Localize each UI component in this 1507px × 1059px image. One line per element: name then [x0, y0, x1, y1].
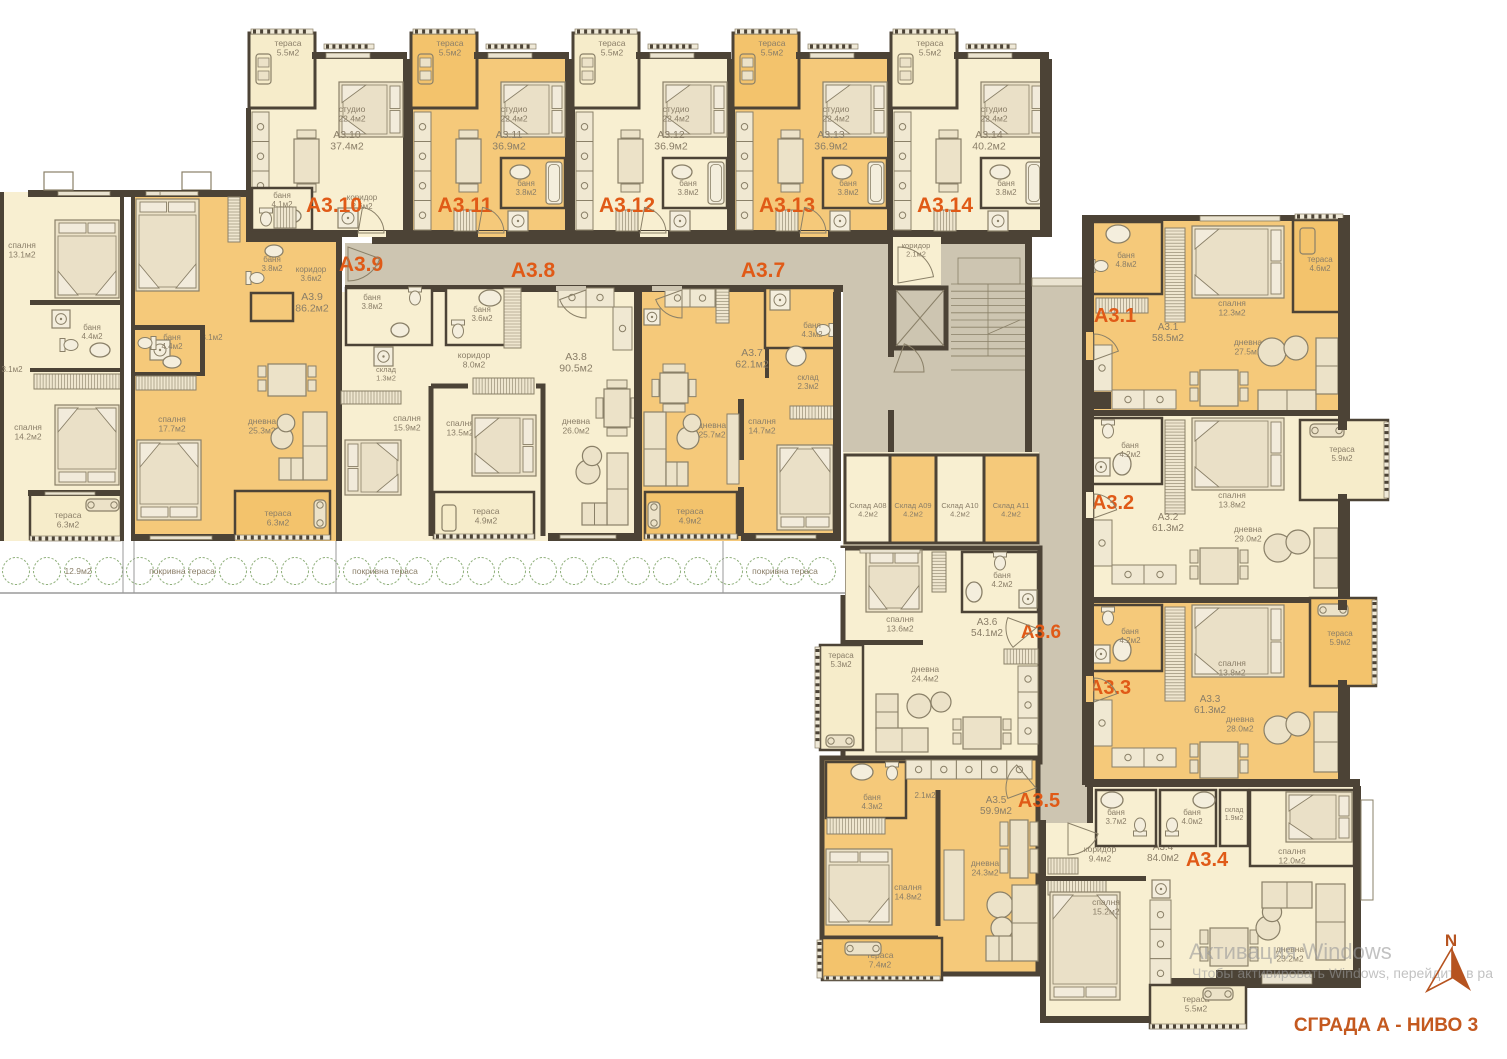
svg-text:3.6м2: 3.6м2	[300, 274, 322, 283]
svg-text:15.2м2: 15.2м2	[1092, 907, 1119, 917]
svg-text:5.5м2: 5.5м2	[439, 48, 462, 58]
svg-text:баня: баня	[1117, 251, 1135, 260]
svg-text:22.4м2: 22.4м2	[822, 114, 849, 124]
svg-text:5.5м2: 5.5м2	[601, 48, 624, 58]
svg-text:3.8м2: 3.8м2	[515, 188, 537, 197]
svg-text:спалня: спалня	[894, 882, 922, 892]
svg-text:дневна: дневна	[971, 858, 1000, 868]
svg-text:спалня: спалня	[158, 414, 186, 424]
svg-text:A3.8: A3.8	[565, 351, 587, 363]
svg-text:3.8м2: 3.8м2	[677, 188, 699, 197]
svg-text:3.8м2: 3.8м2	[261, 264, 283, 273]
svg-text:A3.12: A3.12	[657, 129, 685, 141]
svg-text:26.0м2: 26.0м2	[562, 426, 589, 436]
svg-text:Чтобы активировать Windows, пе: Чтобы активировать Windows, перейдите в …	[1192, 965, 1493, 981]
svg-text:24.3м2: 24.3м2	[971, 868, 998, 878]
svg-text:5.5м2: 5.5м2	[277, 48, 300, 58]
svg-text:покривна тераса: покривна тераса	[352, 566, 418, 576]
svg-text:покривна тераса: покривна тераса	[752, 566, 818, 576]
svg-text:баня: баня	[679, 179, 697, 188]
svg-text:4.2м2: 4.2м2	[903, 510, 923, 519]
svg-text:8.0м2: 8.0м2	[463, 360, 486, 370]
svg-text:дневна: дневна	[698, 420, 727, 430]
svg-text:спалня: спалня	[14, 422, 42, 432]
svg-text:4.8м2: 4.8м2	[1115, 260, 1137, 269]
svg-text:A3.14: A3.14	[975, 129, 1003, 141]
svg-text:A3.5: A3.5	[986, 795, 1007, 806]
svg-text:спалня: спалня	[1092, 897, 1120, 907]
svg-text:3.7м2: 3.7м2	[1105, 817, 1127, 826]
svg-text:5.5м2: 5.5м2	[761, 48, 784, 58]
svg-text:3.8м2: 3.8м2	[361, 302, 383, 311]
svg-text:22.4м2: 22.4м2	[500, 114, 527, 124]
svg-text:спалня: спалня	[748, 416, 776, 426]
svg-text:5.3м2: 5.3м2	[830, 660, 852, 669]
svg-text:тераса: тераса	[1329, 445, 1355, 454]
svg-text:A3.11: A3.11	[438, 194, 493, 217]
svg-text:4.3м2: 4.3м2	[861, 802, 883, 811]
svg-text:9.4м2: 9.4м2	[1089, 854, 1112, 864]
svg-text:61.3м2: 61.3м2	[1194, 705, 1226, 716]
svg-text:2.1м2: 2.1м2	[914, 791, 936, 800]
svg-text:тераса: тераса	[917, 38, 944, 48]
svg-text:1.3м2: 1.3м2	[376, 374, 396, 383]
svg-text:склад: склад	[797, 373, 819, 382]
svg-text:A3.9: A3.9	[301, 291, 323, 303]
svg-text:тераса: тераса	[265, 508, 292, 518]
svg-text:14.2м2: 14.2м2	[14, 432, 41, 442]
svg-text:спалня: спалня	[1218, 490, 1246, 500]
svg-text:A3.2: A3.2	[1158, 512, 1179, 523]
svg-text:13.5м2: 13.5м2	[446, 428, 473, 438]
svg-text:58.5м2: 58.5м2	[1152, 333, 1184, 344]
svg-text:28.0м2: 28.0м2	[1226, 724, 1253, 734]
svg-text:склад: склад	[1225, 807, 1244, 814]
svg-text:2.3м2: 2.3м2	[797, 382, 819, 391]
svg-text:7.4м2: 7.4м2	[869, 960, 892, 970]
svg-text:24.4м2: 24.4м2	[911, 674, 938, 684]
svg-text:баня: баня	[363, 293, 381, 302]
svg-text:A3.8: A3.8	[511, 259, 556, 282]
svg-text:спалня: спалня	[446, 418, 474, 428]
svg-text:3.8м2: 3.8м2	[995, 188, 1017, 197]
svg-text:36.9м2: 36.9м2	[654, 141, 688, 153]
svg-text:спалня: спалня	[8, 240, 36, 250]
svg-text:5.9м2: 5.9м2	[1329, 638, 1351, 647]
svg-text:баня: баня	[993, 571, 1011, 580]
svg-text:тераса: тераса	[275, 38, 302, 48]
svg-text:61.3м2: 61.3м2	[1152, 523, 1184, 534]
svg-text:A3.7: A3.7	[741, 347, 763, 359]
svg-text:баня: баня	[1107, 808, 1125, 817]
svg-text:4.2м2: 4.2м2	[1119, 636, 1141, 645]
svg-text:15.9м2: 15.9м2	[393, 423, 420, 433]
svg-text:покривна тераса: покривна тераса	[149, 566, 215, 576]
svg-text:A3.1: A3.1	[1094, 305, 1136, 327]
svg-text:4.3м2: 4.3м2	[801, 330, 823, 339]
svg-text:A3.4: A3.4	[1186, 849, 1229, 871]
svg-text:12.3м2: 12.3м2	[1218, 308, 1245, 318]
svg-text:62.1м2: 62.1м2	[735, 359, 769, 371]
svg-text:дневна: дневна	[562, 416, 591, 426]
svg-text:баня: баня	[803, 321, 821, 330]
svg-text:13.6м2: 13.6м2	[886, 624, 913, 634]
svg-text:баня: баня	[1121, 627, 1139, 636]
svg-text:5.5м2: 5.5м2	[1185, 1004, 1208, 1014]
svg-text:Активация Windows: Активация Windows	[1189, 939, 1392, 964]
svg-text:баня: баня	[473, 305, 491, 314]
svg-text:дневна: дневна	[1226, 714, 1255, 724]
svg-text:баня: баня	[273, 191, 291, 200]
svg-text:13.1м2: 13.1м2	[8, 250, 35, 260]
svg-text:баня: баня	[263, 255, 281, 264]
svg-text:36.9м2: 36.9м2	[814, 141, 848, 153]
svg-text:4.2м2: 4.2м2	[858, 510, 878, 519]
svg-text:59.9м2: 59.9м2	[980, 806, 1012, 817]
svg-text:тераса: тераса	[759, 38, 786, 48]
svg-text:коридор: коридор	[458, 350, 491, 360]
svg-text:СГРАДА А - НИВО 3: СГРАДА А - НИВО 3	[1294, 1015, 1478, 1036]
svg-text:12.9м2: 12.9м2	[64, 566, 91, 576]
svg-text:баня: баня	[83, 323, 101, 332]
svg-text:14.8м2: 14.8м2	[894, 892, 921, 902]
svg-text:13.8м2: 13.8м2	[1218, 500, 1245, 510]
svg-text:A3.6: A3.6	[977, 617, 998, 628]
svg-text:4.9м2: 4.9м2	[679, 516, 702, 526]
svg-text:студио: студио	[501, 104, 528, 114]
svg-text:3.1м2: 3.1м2	[1, 365, 23, 374]
svg-text:спалня: спалня	[1278, 846, 1306, 856]
svg-text:3.8м2: 3.8м2	[837, 188, 859, 197]
svg-text:A3.3: A3.3	[1200, 694, 1221, 705]
svg-text:спалня: спалня	[886, 614, 914, 624]
svg-text:4.2м2: 4.2м2	[950, 510, 970, 519]
svg-text:25.7м2: 25.7м2	[698, 430, 725, 440]
svg-text:3.6м2: 3.6м2	[471, 314, 493, 323]
svg-text:29.0м2: 29.0м2	[1234, 534, 1261, 544]
svg-text:13.8м2: 13.8м2	[1218, 668, 1245, 678]
svg-text:тераса: тераса	[1327, 629, 1353, 638]
svg-text:36.9м2: 36.9м2	[492, 141, 526, 153]
svg-text:тераса: тераса	[599, 38, 626, 48]
svg-text:дневна: дневна	[1234, 337, 1263, 347]
svg-text:N: N	[1445, 931, 1457, 950]
svg-text:спалня: спалня	[1218, 298, 1246, 308]
svg-text:студио: студио	[823, 104, 850, 114]
svg-text:A3.7: A3.7	[741, 259, 785, 282]
svg-text:4.0м2: 4.0м2	[1181, 817, 1203, 826]
svg-text:84.0м2: 84.0м2	[1147, 853, 1179, 864]
svg-text:тераса: тераса	[1307, 255, 1333, 264]
svg-text:22.4м2: 22.4м2	[338, 114, 365, 124]
svg-text:тераса: тераса	[473, 506, 500, 516]
svg-text:студио: студио	[663, 104, 690, 114]
svg-text:5.5м2: 5.5м2	[919, 48, 942, 58]
svg-text:тераса: тераса	[437, 38, 464, 48]
svg-text:студио: студио	[981, 104, 1008, 114]
svg-text:6.3м2: 6.3м2	[267, 518, 290, 528]
svg-text:40.2м2: 40.2м2	[972, 141, 1006, 153]
svg-text:14.7м2: 14.7м2	[748, 426, 775, 436]
svg-text:дневна: дневна	[248, 416, 277, 426]
svg-text:4.4м2: 4.4м2	[81, 332, 103, 341]
svg-text:37.4м2: 37.4м2	[330, 141, 364, 153]
svg-text:A3.9: A3.9	[339, 253, 383, 276]
svg-text:баня: баня	[1183, 808, 1201, 817]
svg-text:4.2м2: 4.2м2	[1119, 450, 1141, 459]
svg-text:баня: баня	[839, 179, 857, 188]
svg-text:A3.5: A3.5	[1018, 790, 1060, 812]
svg-text:A3.12: A3.12	[599, 194, 655, 217]
svg-text:A3.10: A3.10	[306, 194, 362, 217]
svg-text:1.9м2: 1.9м2	[1225, 815, 1244, 822]
svg-text:тераса: тераса	[677, 506, 704, 516]
svg-text:A3.11: A3.11	[496, 129, 523, 141]
svg-text:тераса: тераса	[828, 651, 854, 660]
svg-text:22.4м2: 22.4м2	[980, 114, 1007, 124]
svg-text:12.0м2: 12.0м2	[1278, 856, 1305, 866]
svg-text:A3.14: A3.14	[917, 194, 973, 217]
svg-text:баня: баня	[863, 793, 881, 802]
svg-text:студио: студио	[339, 104, 366, 114]
svg-text:17.7м2: 17.7м2	[158, 424, 185, 434]
svg-text:4.2м2: 4.2м2	[1001, 510, 1021, 519]
svg-text:спалня: спалня	[393, 413, 421, 423]
svg-text:54.1м2: 54.1м2	[971, 628, 1003, 639]
svg-text:5.9м2: 5.9м2	[1331, 454, 1353, 463]
svg-text:баня: баня	[997, 179, 1015, 188]
svg-text:6.3м2: 6.3м2	[57, 520, 80, 530]
svg-text:4.9м2: 4.9м2	[475, 516, 498, 526]
svg-text:A3.13: A3.13	[817, 129, 845, 141]
svg-text:A3.1: A3.1	[1158, 322, 1179, 333]
svg-text:86.2м2: 86.2м2	[295, 303, 329, 315]
svg-text:дневна: дневна	[1234, 524, 1263, 534]
svg-text:коридор: коридор	[296, 265, 327, 274]
svg-text:спалня: спалня	[1218, 658, 1246, 668]
svg-text:90.5м2: 90.5м2	[559, 363, 593, 375]
svg-text:4.4м2: 4.4м2	[161, 342, 183, 351]
svg-text:баня: баня	[1121, 441, 1139, 450]
svg-text:тераса: тераса	[55, 510, 82, 520]
svg-text:A3.10: A3.10	[333, 129, 361, 141]
svg-text:A3.13: A3.13	[759, 194, 815, 217]
svg-text:4.2м2: 4.2м2	[991, 580, 1013, 589]
svg-text:дневна: дневна	[911, 664, 940, 674]
svg-text:4.6м2: 4.6м2	[1309, 264, 1331, 273]
svg-text:22.4м2: 22.4м2	[662, 114, 689, 124]
svg-text:баня: баня	[517, 179, 535, 188]
svg-text:баня: баня	[163, 333, 181, 342]
